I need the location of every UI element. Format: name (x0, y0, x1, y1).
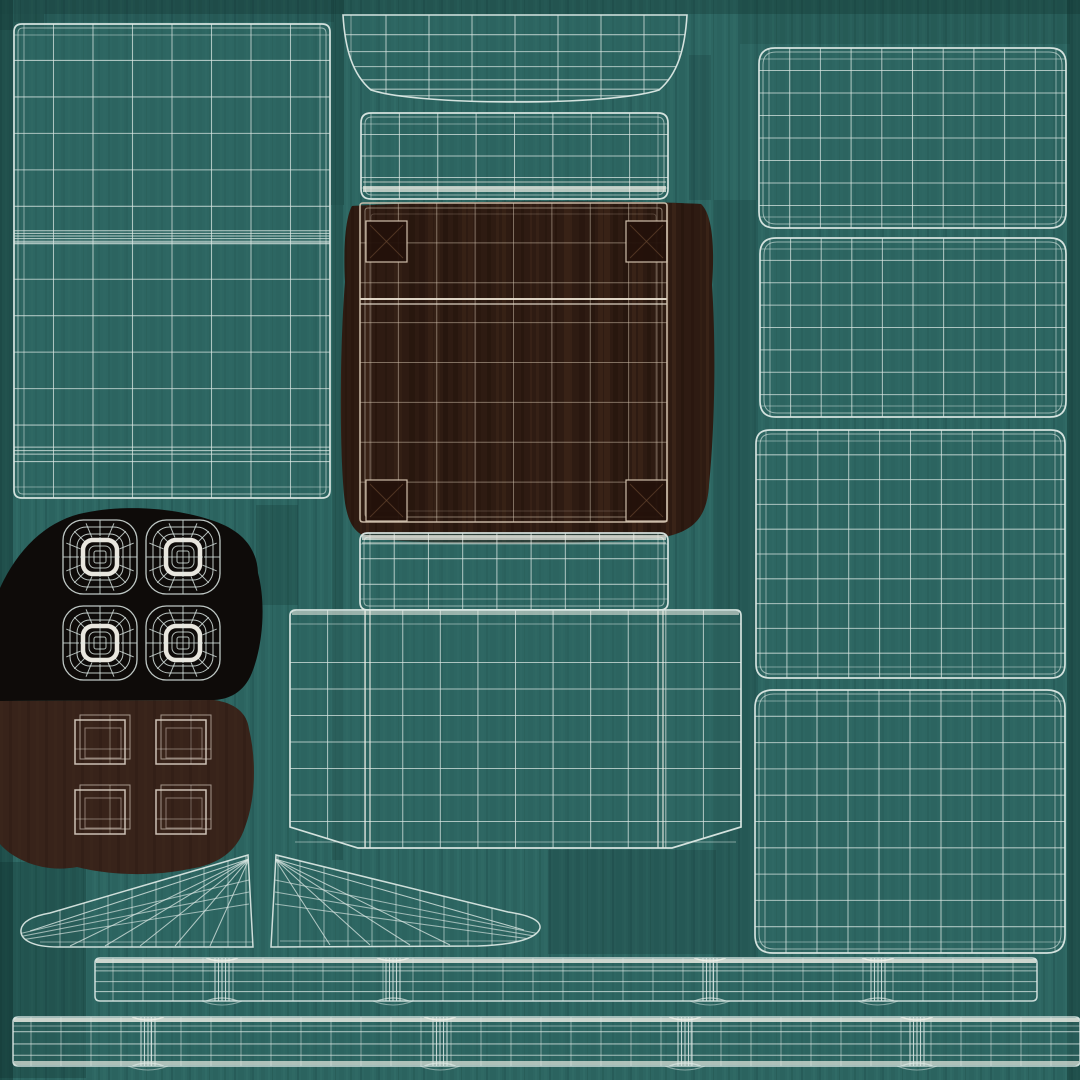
backrest-panel (14, 24, 330, 498)
uv-texture-atlas (0, 0, 1080, 1080)
seat-band (360, 533, 668, 610)
uv-atlas-svg (0, 0, 1080, 1080)
cushion-c (756, 430, 1065, 678)
leg-caps (0, 695, 255, 880)
cushion-a (759, 48, 1066, 228)
seat-shell (290, 610, 741, 848)
foot-pads (0, 508, 263, 701)
side-rail-top (95, 958, 1037, 1005)
side-rail-bottom (13, 1017, 1080, 1070)
tabletop-wood-panel (340, 196, 717, 548)
cushion-d (755, 690, 1065, 953)
headrest-band (361, 113, 668, 199)
cushion-b (760, 238, 1066, 417)
